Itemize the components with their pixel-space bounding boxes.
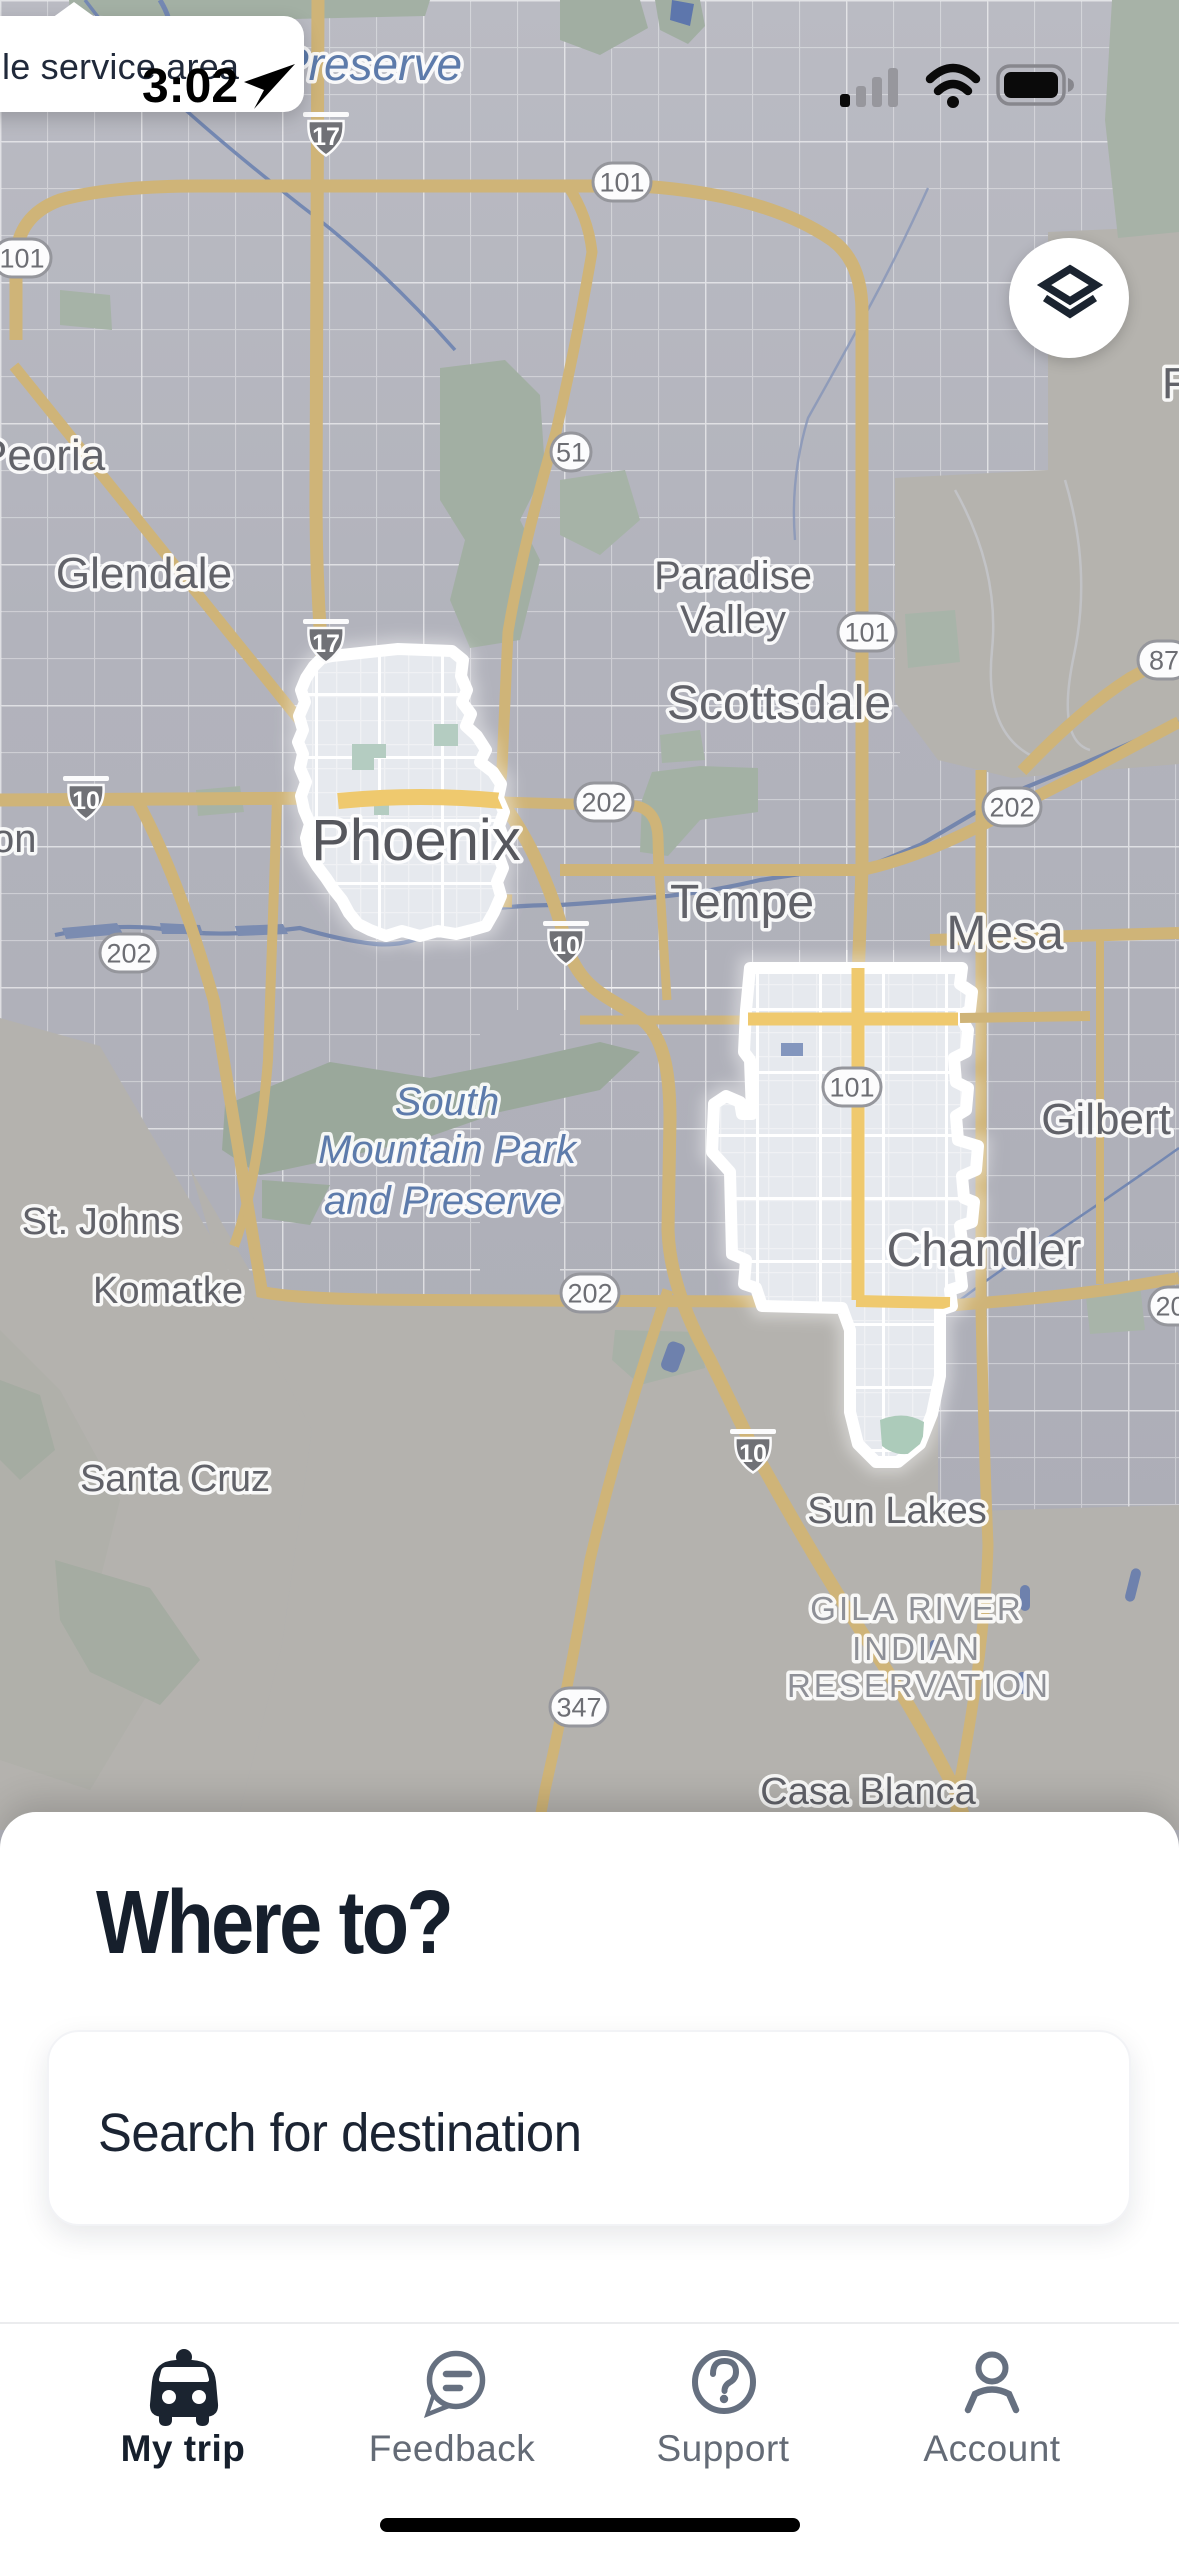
svg-text:202: 202 (567, 1279, 612, 1309)
svg-text:Scottsdale: Scottsdale (667, 677, 891, 730)
svg-text:RESERVATION: RESERVATION (787, 1667, 1051, 1704)
svg-text:101: 101 (599, 168, 644, 198)
svg-text:South: South (395, 1080, 500, 1124)
svg-text:101: 101 (844, 618, 889, 648)
svg-text:Preserve: Preserve (278, 38, 462, 90)
svg-text:Paradise: Paradise (654, 554, 812, 598)
svg-text:GILA RIVER: GILA RIVER (810, 1590, 1023, 1627)
svg-text:202: 202 (989, 793, 1034, 823)
svg-text:10: 10 (72, 787, 100, 815)
svg-text:Sun Lakes: Sun Lakes (807, 1490, 987, 1532)
svg-text:101: 101 (829, 1073, 874, 1103)
svg-text:Casa Blanca: Casa Blanca (760, 1771, 976, 1813)
svg-text:Valley: Valley (680, 598, 786, 642)
svg-text:Gilbert: Gilbert (1041, 1095, 1171, 1144)
svg-text:Fo: Fo (1162, 359, 1179, 408)
svg-text:10: 10 (552, 932, 580, 960)
svg-text:Mesa: Mesa (946, 907, 1064, 960)
svg-text:202: 202 (1155, 1292, 1179, 1322)
svg-text:and Preserve: and Preserve (324, 1179, 562, 1223)
svg-text:Mountain Park: Mountain Park (318, 1128, 578, 1172)
svg-text:Glendale: Glendale (56, 549, 232, 598)
svg-text:101: 101 (0, 244, 45, 274)
svg-text:Peoria: Peoria (0, 431, 106, 480)
svg-text:Chandler: Chandler (887, 1224, 1082, 1277)
svg-text:Phoenix: Phoenix (311, 808, 521, 873)
svg-text:Santa Cruz: Santa Cruz (80, 1458, 270, 1500)
svg-text:on: on (0, 817, 37, 861)
svg-text:347: 347 (556, 1693, 601, 1723)
svg-text:202: 202 (581, 788, 626, 818)
svg-text:Komatke: Komatke (93, 1270, 243, 1312)
svg-text:51: 51 (556, 438, 586, 468)
svg-text:Tempe: Tempe (670, 876, 814, 929)
svg-text:INDIAN: INDIAN (852, 1630, 982, 1667)
svg-text:St. Johns: St. Johns (22, 1201, 180, 1243)
svg-text:17: 17 (312, 630, 340, 658)
svg-text:87: 87 (1149, 646, 1179, 676)
svg-text:17: 17 (312, 123, 340, 151)
svg-text:202: 202 (106, 939, 151, 969)
svg-text:10: 10 (739, 1440, 767, 1468)
